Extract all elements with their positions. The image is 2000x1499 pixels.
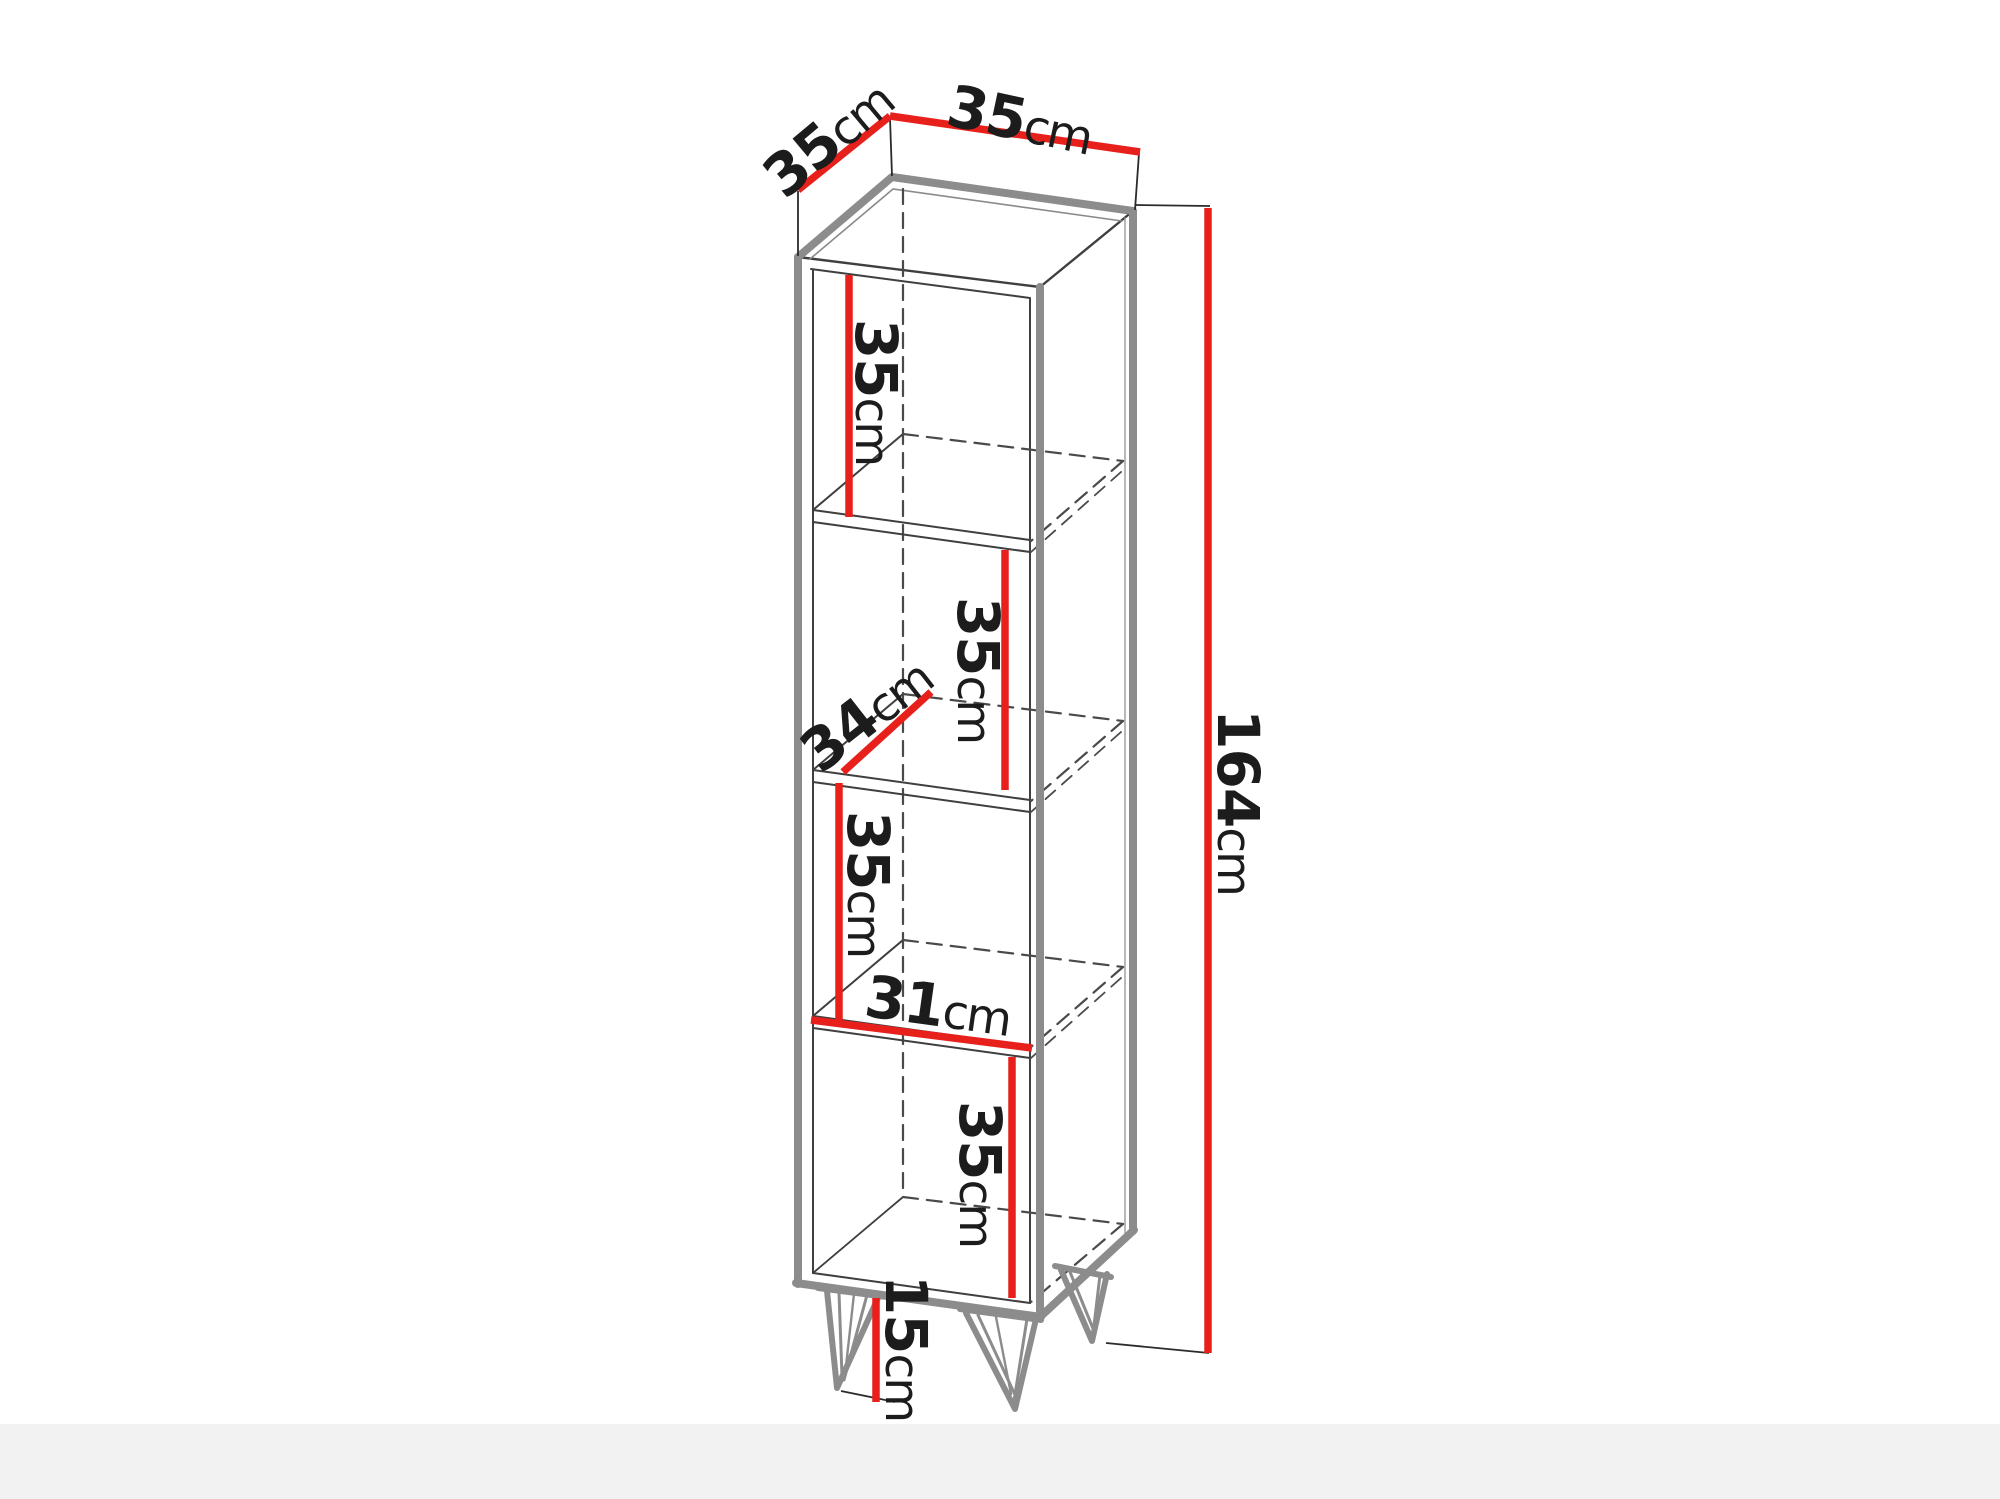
dim-label-compartment-1: 35cm	[847, 319, 905, 465]
dim-label-compartment-4: 35cm	[951, 1101, 1009, 1247]
top-face	[798, 177, 1133, 287]
hairpin-legs	[818, 1266, 1111, 1409]
dim-label-compartment-3: 35cm	[839, 811, 897, 957]
diagram-canvas	[0, 0, 2000, 1499]
front-right-leg	[960, 1309, 1041, 1409]
dim-label-compartment-2: 35cm	[949, 597, 1007, 743]
floor-band	[0, 1424, 2000, 1499]
dimension-diagram: 35cm 35cm 35cm 35cm 34cm 35cm 31cm 35cm …	[0, 0, 2000, 1499]
dim-label-total-height: 164cm	[1209, 709, 1267, 895]
dim-label-leg-height: 15cm	[877, 1275, 935, 1421]
